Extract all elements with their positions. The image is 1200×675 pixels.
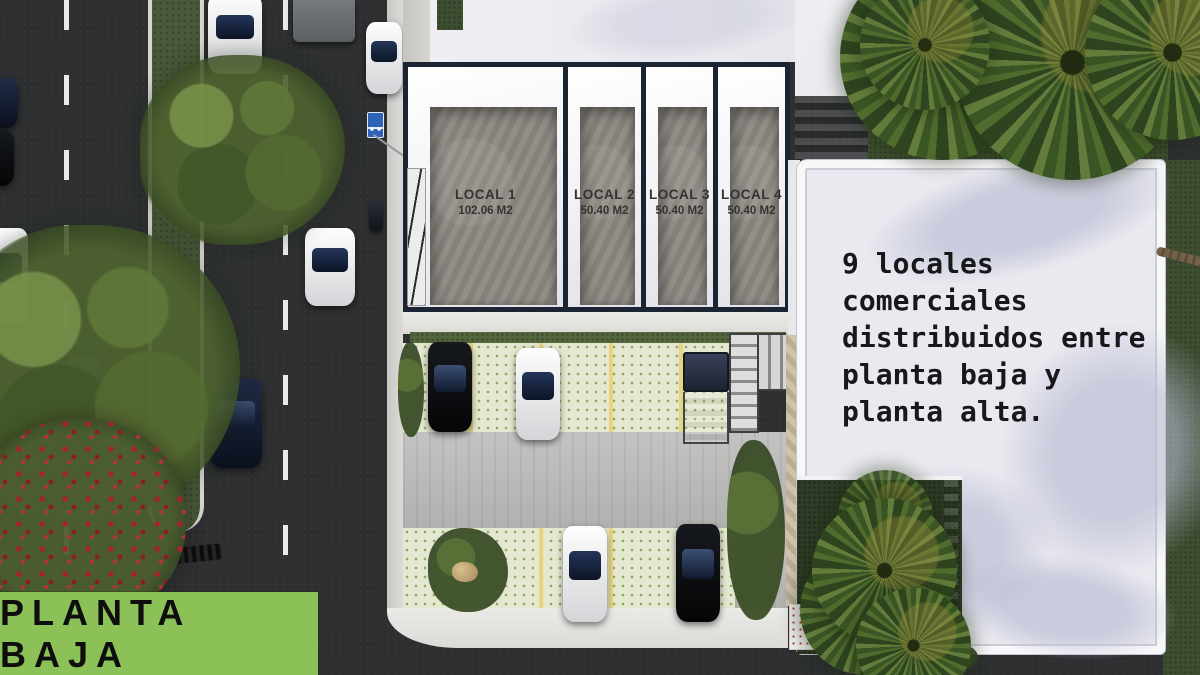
grass-patch-top	[437, 0, 463, 30]
floor-badge-label: PLANTA BAJA	[0, 592, 318, 675]
car-windshield	[312, 248, 348, 271]
van-windshield	[371, 41, 397, 63]
car-windshield	[522, 372, 554, 400]
local-area-label: 102.06 M2	[408, 205, 563, 217]
cyclist	[369, 200, 383, 232]
local-area-label: 50.40 M2	[646, 205, 713, 217]
exterior-stairs	[729, 333, 759, 433]
trash-enclosure-bottom	[683, 392, 729, 444]
locals-building: LOCAL 1 102.06 M2 LOCAL 2 50.40 M2 LOCAL…	[403, 62, 790, 312]
local-name-label: LOCAL 3	[646, 187, 713, 202]
local-unit-1: LOCAL 1 102.06 M2	[408, 67, 563, 307]
car-windshield	[682, 549, 714, 578]
car-parked-edge2	[0, 130, 14, 186]
local-name-label: LOCAL 2	[568, 187, 641, 202]
car-parked-edge	[0, 78, 18, 128]
local-name-label: LOCAL 4	[718, 187, 785, 202]
local-unit-3: LOCAL 3 50.40 M2	[641, 67, 713, 307]
suv-black-parked	[428, 342, 472, 432]
front-walkway	[403, 312, 790, 334]
car-windshield	[216, 15, 255, 39]
trash-enclosure-top	[683, 352, 729, 392]
car-white-mid	[305, 228, 355, 306]
pavement-corner	[403, 0, 433, 62]
local-4-label: LOCAL 4 50.40 M2	[718, 187, 785, 217]
car-white-parked-bottom	[563, 526, 607, 622]
car-white-parked-top	[516, 348, 560, 440]
floor-badge: PLANTA BAJA	[0, 592, 318, 675]
local-1-label: LOCAL 1 102.06 M2	[408, 187, 563, 217]
pickup-truck	[293, 0, 355, 42]
van-white	[366, 22, 402, 94]
car-black-parked-bottom	[676, 524, 720, 622]
local-area-label: 50.40 M2	[718, 205, 785, 217]
local-unit-4: LOCAL 4 50.40 M2	[713, 67, 785, 307]
car-windshield	[434, 365, 466, 392]
local-3-label: LOCAL 3 50.40 M2	[646, 187, 713, 217]
car-windshield	[569, 551, 601, 580]
local-2-label: LOCAL 2 50.40 M2	[568, 187, 641, 217]
planter-bush-left	[398, 342, 424, 437]
local-unit-2: LOCAL 2 50.40 M2	[563, 67, 641, 307]
tree-canopy-top	[140, 55, 345, 245]
annotation-text: 9 locales comerciales distribuidos entre…	[842, 245, 1154, 430]
landscape-rock	[452, 562, 478, 582]
local-area-label: 50.40 M2	[568, 205, 641, 217]
exterior-stairs-upper	[759, 333, 788, 391]
local-name-label: LOCAL 1	[408, 187, 563, 202]
site-plan-render: LOCAL 1 102.06 M2 LOCAL 2 50.40 M2 LOCAL…	[0, 0, 1200, 675]
